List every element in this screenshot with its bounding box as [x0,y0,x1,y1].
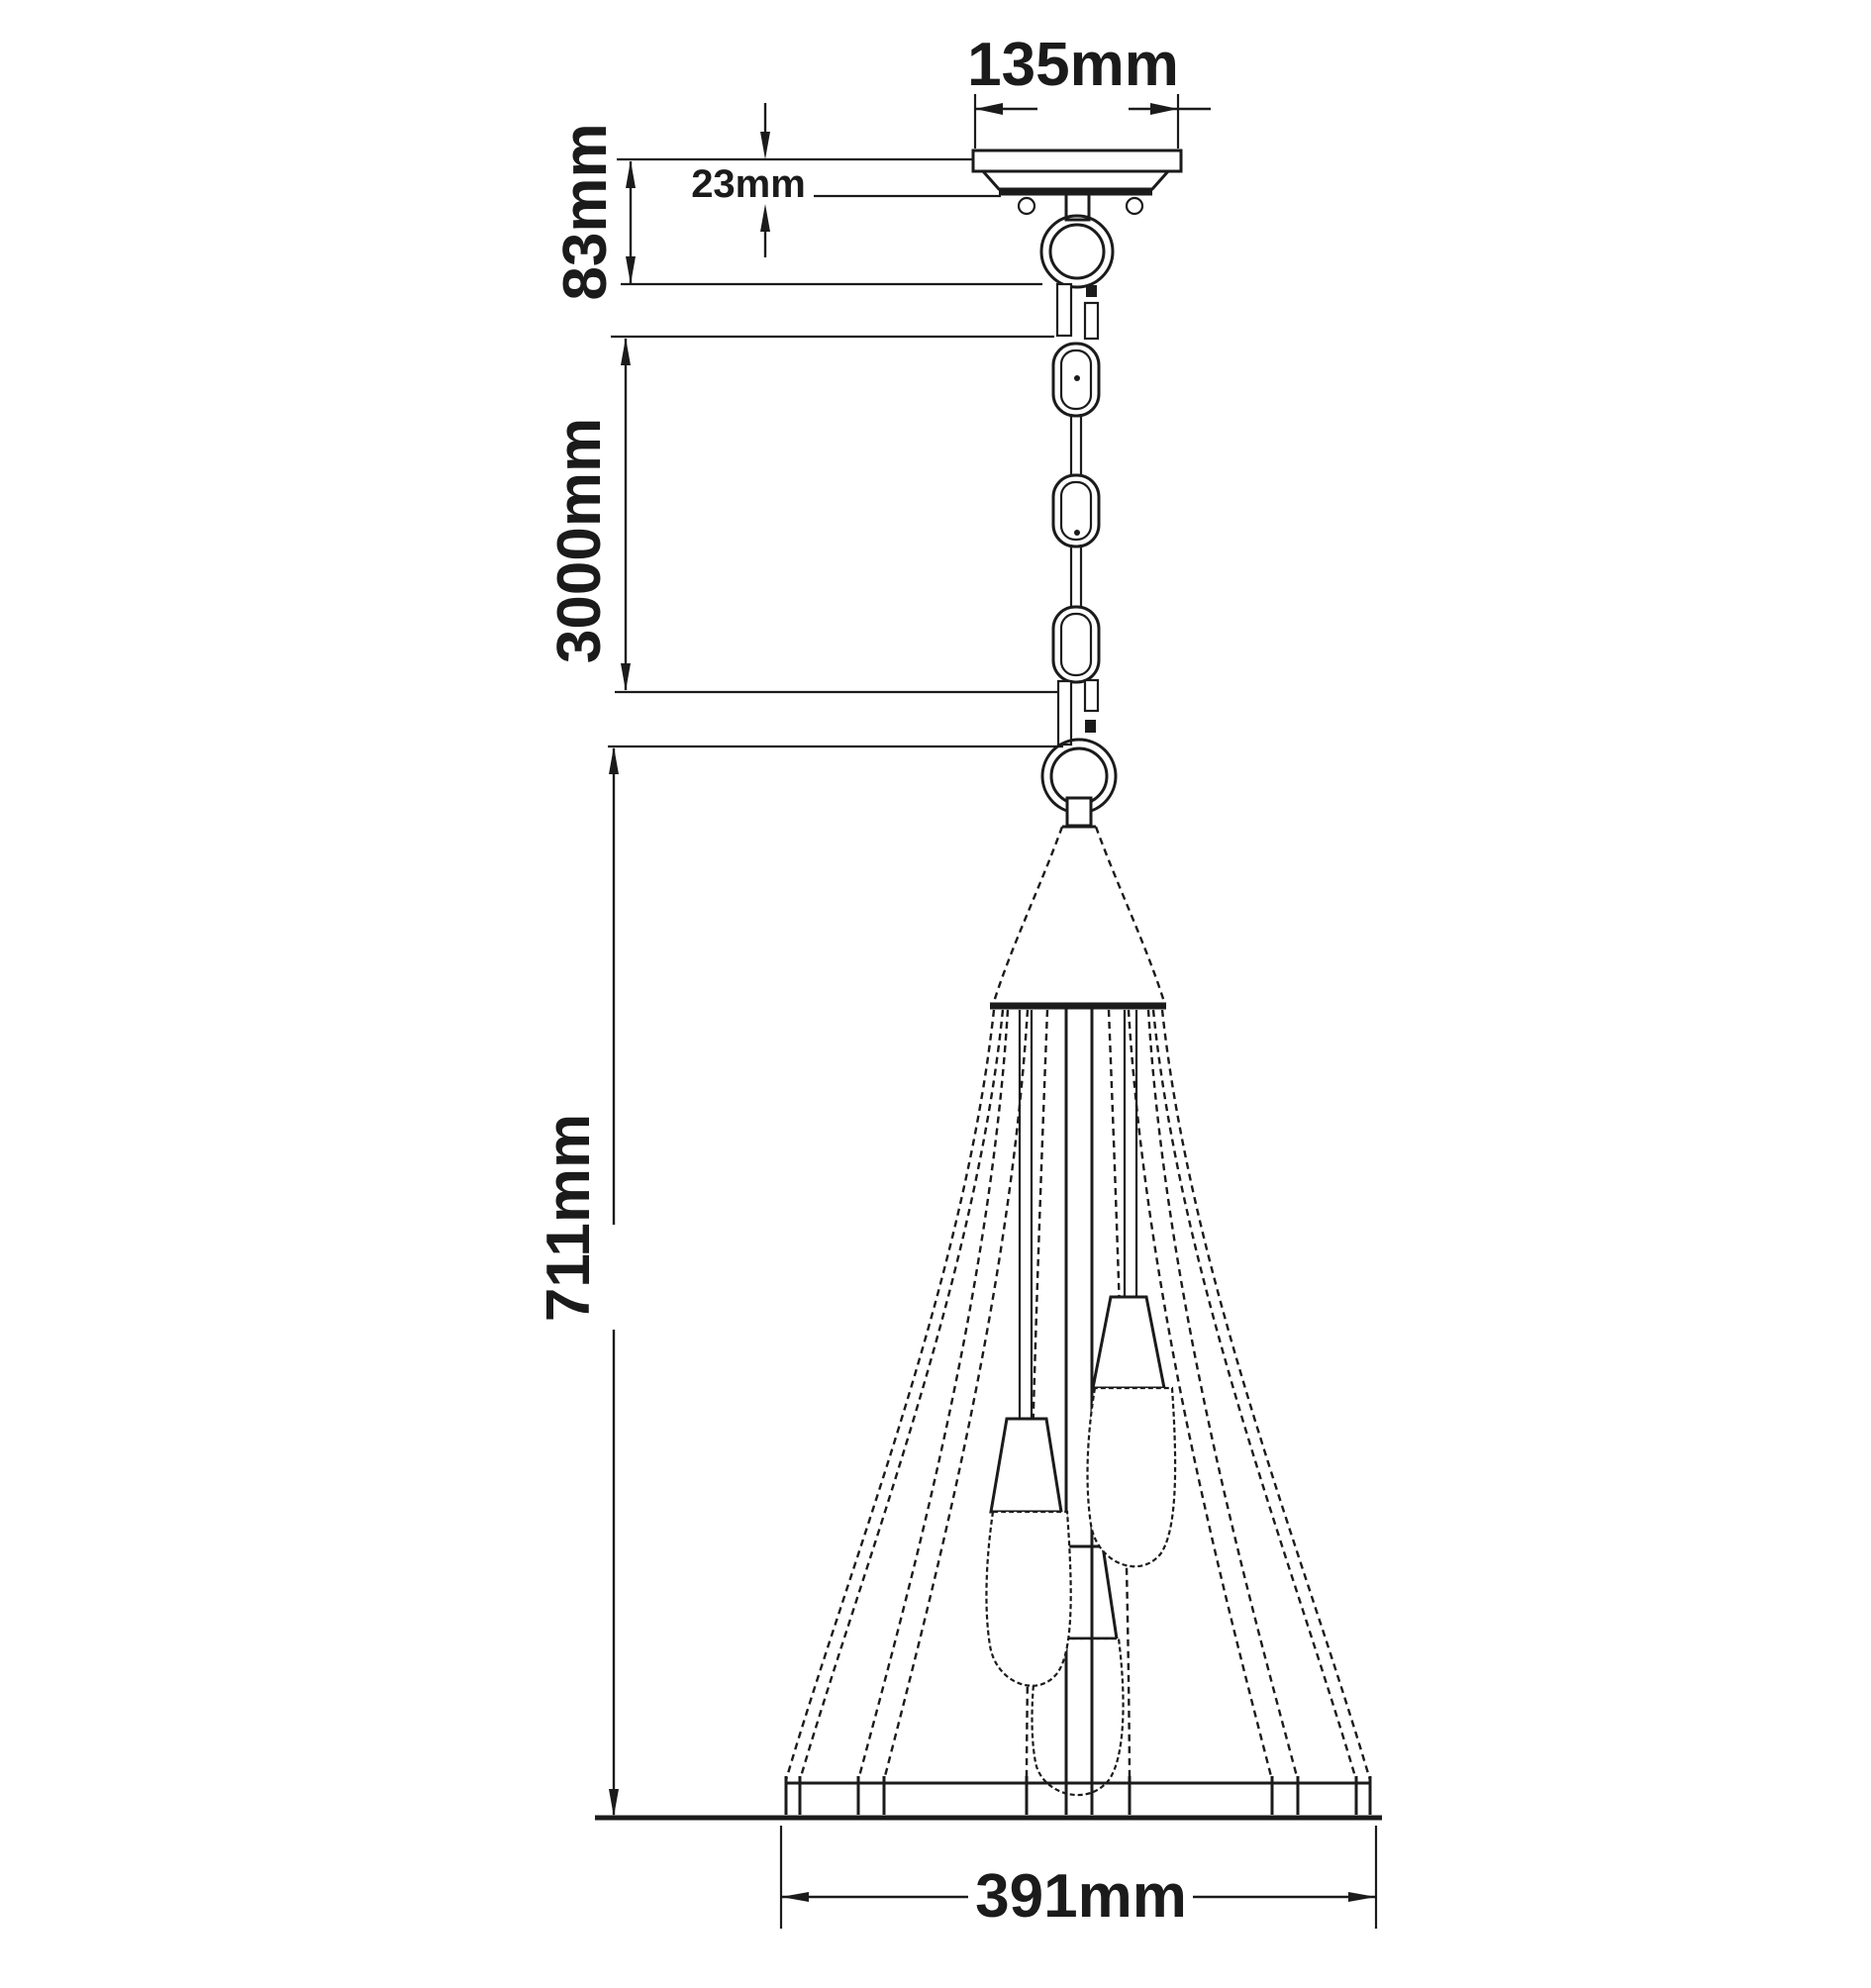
dimension-shade-width: 391mm [781,1826,1376,1931]
canopy-screw-left [1019,198,1034,214]
cage-bottom-rim [595,1776,1382,1818]
cone-connector [1067,798,1091,826]
chain [1053,344,1099,682]
dimension-canopy-width: 135mm [967,31,1211,149]
dimension-chain-length: 3000mm [545,337,1057,692]
dim-label-fixture-height: 711mm [535,1114,603,1322]
lower-hook [1058,680,1098,745]
mounting-ring [1041,216,1113,287]
dim-label-mount-height: 83mm [551,123,620,300]
lamp-right [1088,1010,1176,1566]
dim-label-chain-length: 3000mm [545,418,614,663]
dimension-mount-height: 83mm [551,123,1042,300]
dim-label-canopy-width: 135mm [967,31,1179,99]
lamp-socket [1093,1297,1164,1388]
dimension-fixture-height: 711mm [535,746,1063,1817]
light-bulb [986,1512,1070,1686]
technical-drawing-page: 135mm 23mm 83mm 3000mm 711mm [0,0,1871,1988]
ceiling-canopy [973,150,1181,220]
dim-label-canopy-drop: 23mm [691,162,806,206]
dim-label-shade-width: 391mm [975,1862,1187,1931]
upper-hook [1057,284,1098,339]
light-bulb [1088,1388,1176,1566]
dimension-canopy-drop: 23mm [617,103,1001,257]
canopy-screw-right [1127,198,1142,214]
cone-holder [990,798,1166,1006]
lamp-socket [991,1419,1061,1512]
pendant-light-drawing: 135mm 23mm 83mm 3000mm 711mm [0,0,1871,1988]
